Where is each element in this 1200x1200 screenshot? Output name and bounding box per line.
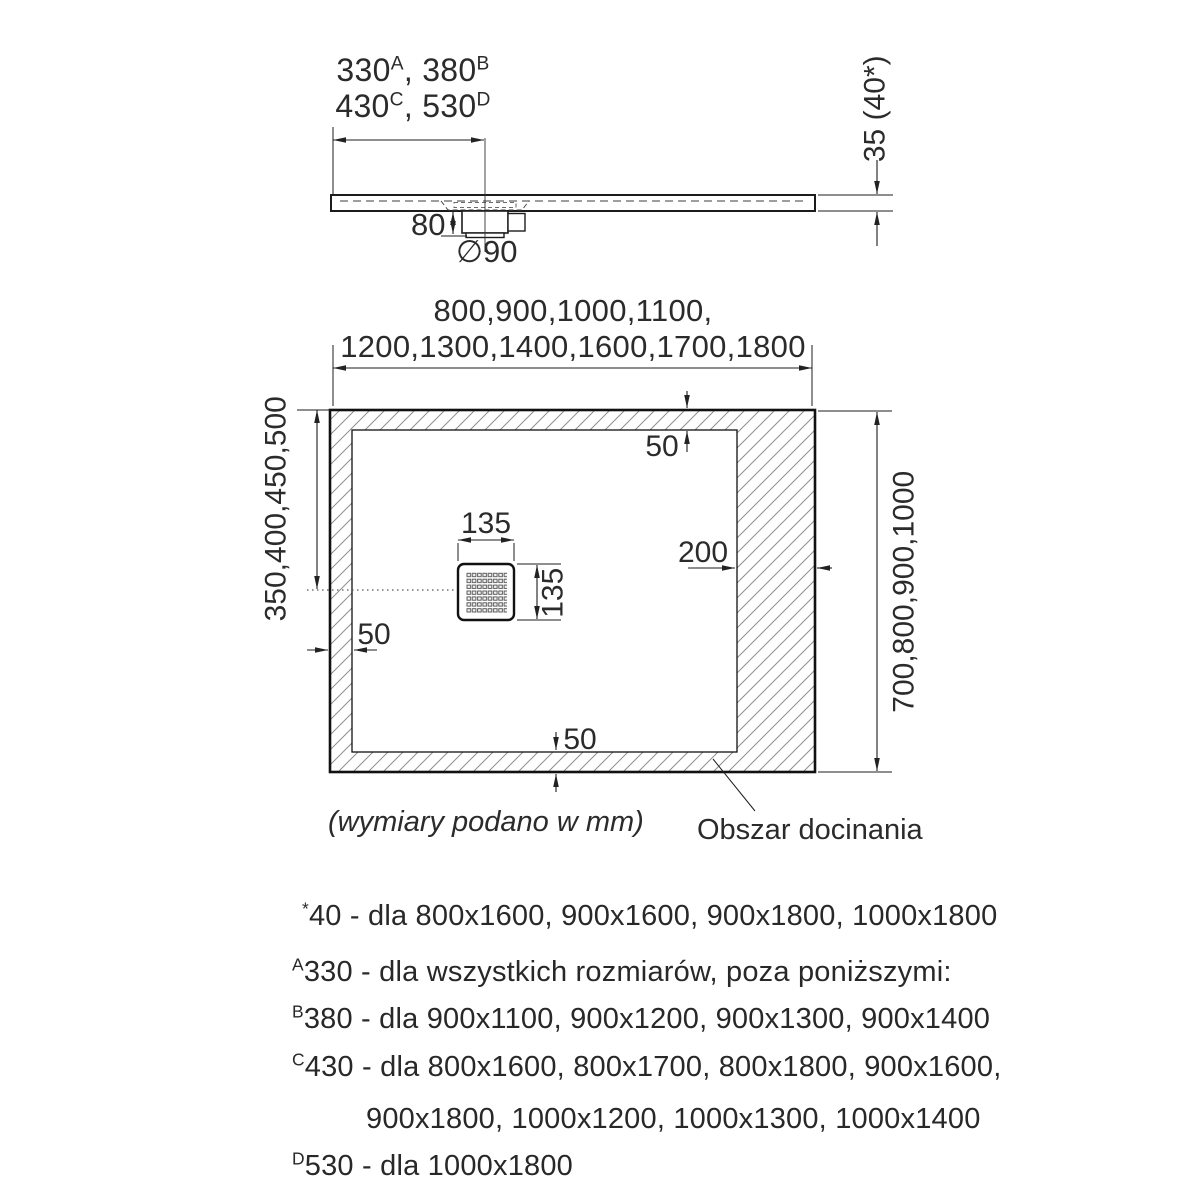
- footnote-asterisk-40: *40 - dla 800x1600, 900x1600, 900x1800, …: [302, 900, 997, 933]
- margin-top-dim-label: 50: [640, 431, 684, 463]
- margin-left-dim-label: 50: [354, 619, 394, 651]
- trim-zone-label: Obszar docinania: [697, 815, 923, 845]
- plan-length-sizes-label: 700,800,900,1000: [888, 467, 920, 717]
- margin-bottom-dim-label: 50: [560, 724, 600, 756]
- plan-width-sizes-line2: 1200,1300,1400,1600,1700,1800: [330, 331, 816, 364]
- footnote-a-330: A330 - dla wszystkich rozmiarów, poza po…: [292, 956, 952, 989]
- tray-height-label: 35 (40*): [859, 34, 891, 184]
- drain-height-dim-label: 135: [537, 558, 569, 628]
- trim-width-dim-label: 200: [673, 537, 733, 569]
- footnote-c-continued: 900x1800, 1000x1200, 1000x1300, 1000x140…: [366, 1103, 981, 1136]
- drain-outlet-pipe: [508, 214, 525, 232]
- drain-width-dim-label: 135: [446, 508, 526, 540]
- length-dim-extensions: [818, 411, 892, 772]
- footnote-c-430: C430 - dla 800x1600, 800x1700, 800x1800,…: [292, 1051, 1001, 1084]
- technical-drawing-canvas: 330A, 380B 430C, 530D 35 (40*) 80 ∅90 80…: [0, 0, 1200, 1200]
- tray-height-extensions: [818, 195, 893, 211]
- plan-offset-sizes-label: 350,400,450,500: [260, 391, 292, 627]
- offset-note-line2: 430C, 530D: [293, 90, 533, 124]
- plan-width-sizes-line1: 800,900,1000,1100,: [330, 295, 816, 328]
- drain-grate-grid: [466, 572, 507, 613]
- trap-height-label: 80: [411, 209, 445, 242]
- footnote-b-380: B380 - dla 900x1100, 900x1200, 900x1300,…: [292, 1003, 990, 1036]
- footnote-d-530: D530 - dla 1000x1800: [292, 1150, 573, 1183]
- drain-diameter-label: ∅90: [456, 236, 518, 269]
- offset-note-line1: 330A, 380B: [293, 54, 533, 88]
- units-note: (wymiary podano w mm): [328, 807, 598, 837]
- side-profile: [331, 195, 815, 211]
